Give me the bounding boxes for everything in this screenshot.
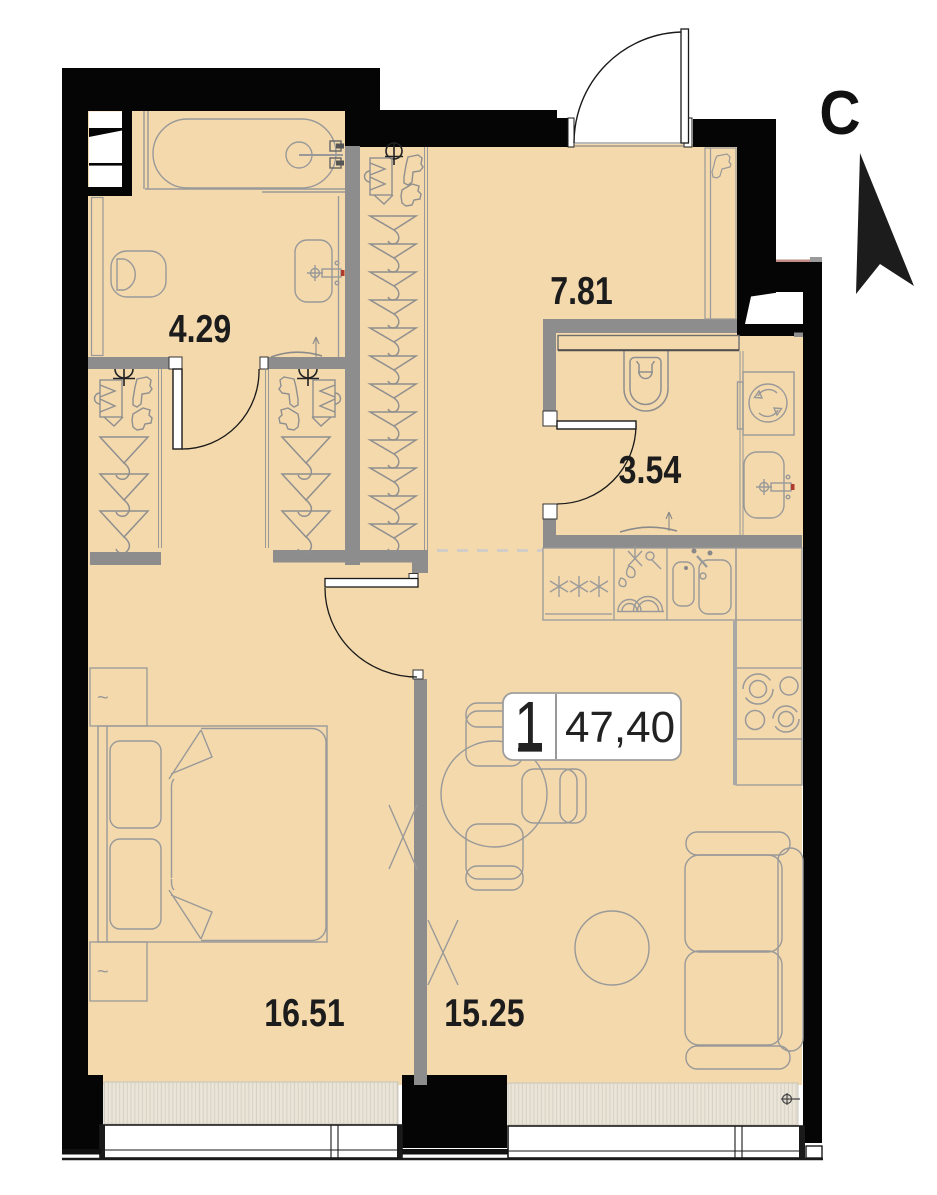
svg-text:C: C — [819, 78, 860, 148]
svg-text:7.81: 7.81 — [550, 269, 613, 312]
svg-text:16.51: 16.51 — [264, 991, 344, 1034]
svg-text:47,40: 47,40 — [565, 703, 675, 752]
svg-text:~: ~ — [97, 961, 109, 983]
svg-text:3.54: 3.54 — [619, 448, 682, 491]
svg-text:15.25: 15.25 — [444, 991, 524, 1034]
svg-text:~: ~ — [97, 687, 109, 709]
svg-text:4.29: 4.29 — [169, 307, 232, 350]
